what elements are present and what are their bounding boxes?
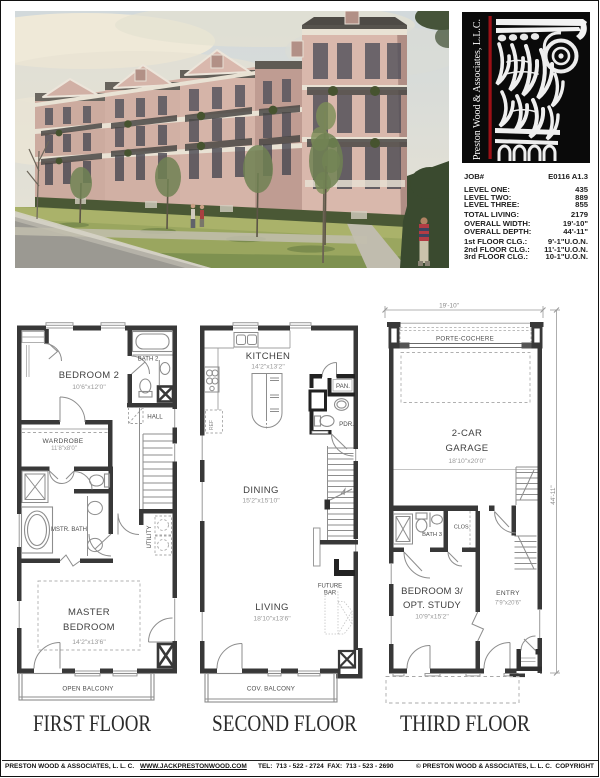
svg-text:FIRST FLOOR: FIRST FLOOR [33,711,152,736]
svg-text:THIRD FLOOR: THIRD FLOOR [400,711,531,736]
svg-text:SECOND FLOOR: SECOND FLOOR [212,711,358,736]
